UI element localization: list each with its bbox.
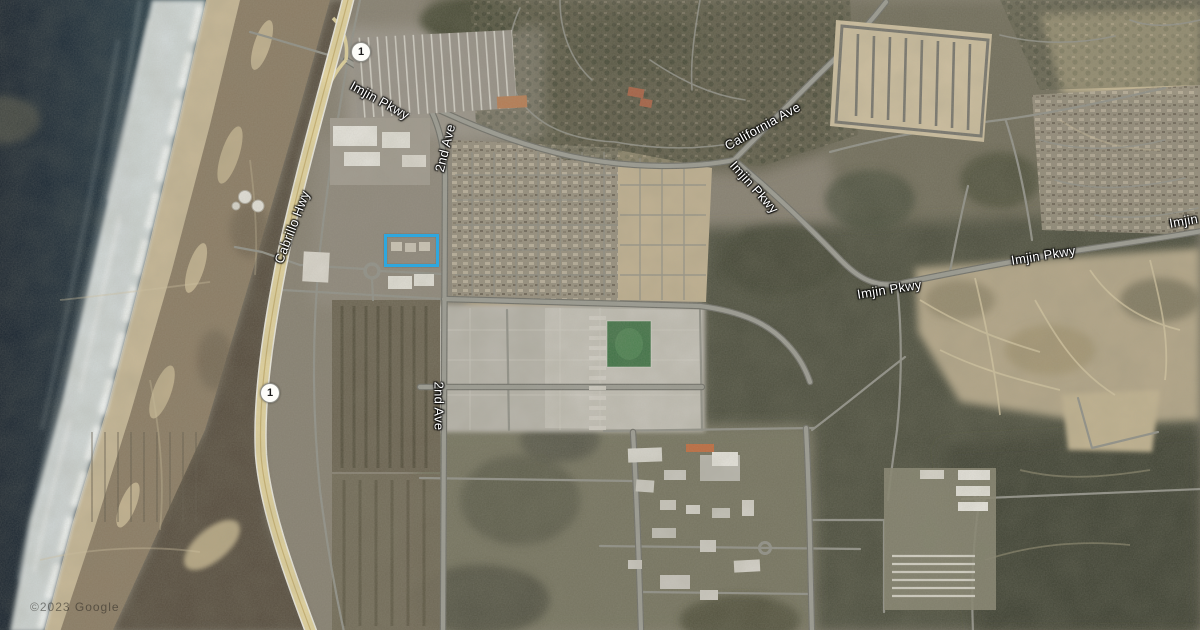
image-grain	[0, 0, 1200, 630]
selected-parcel-highlight[interactable]	[384, 234, 439, 267]
satellite-imagery	[0, 0, 1200, 630]
satellite-map[interactable]: Imjin Pkwy California Ave Imjin Pkwy Imj…	[0, 0, 1200, 630]
